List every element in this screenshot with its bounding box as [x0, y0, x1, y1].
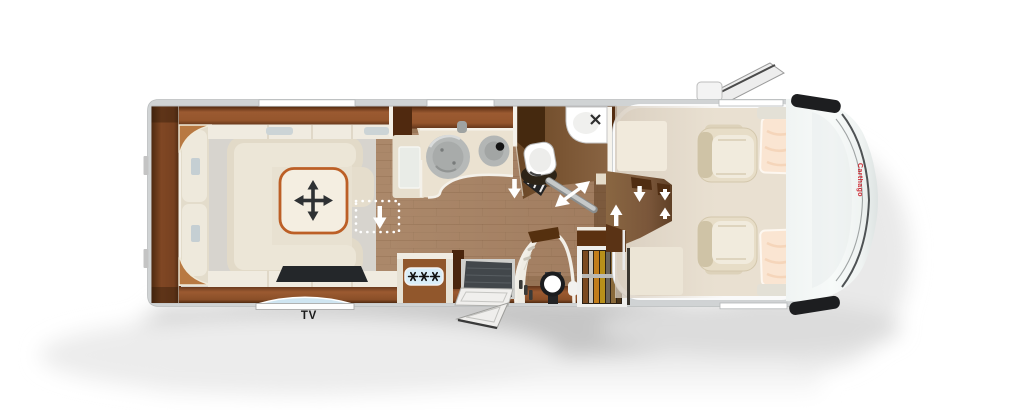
svg-text:Carthago: Carthago — [856, 163, 863, 197]
svg-text:TV: TV — [301, 310, 317, 322]
